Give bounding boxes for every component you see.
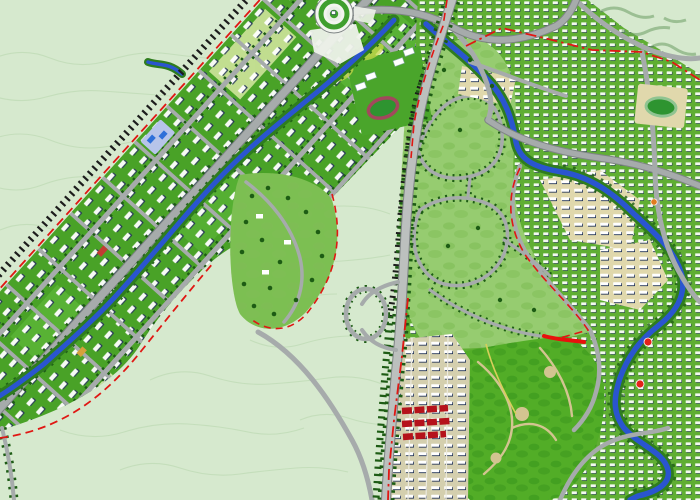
- landmark-marker-red: [644, 338, 652, 346]
- master-plan-svg: [0, 0, 700, 500]
- roundabout-monument: [332, 11, 336, 14]
- landmark-marker-red: [636, 380, 644, 388]
- landmark-marker-orange: [651, 199, 657, 205]
- green-stadium: [634, 84, 688, 129]
- planning-map: [0, 0, 700, 500]
